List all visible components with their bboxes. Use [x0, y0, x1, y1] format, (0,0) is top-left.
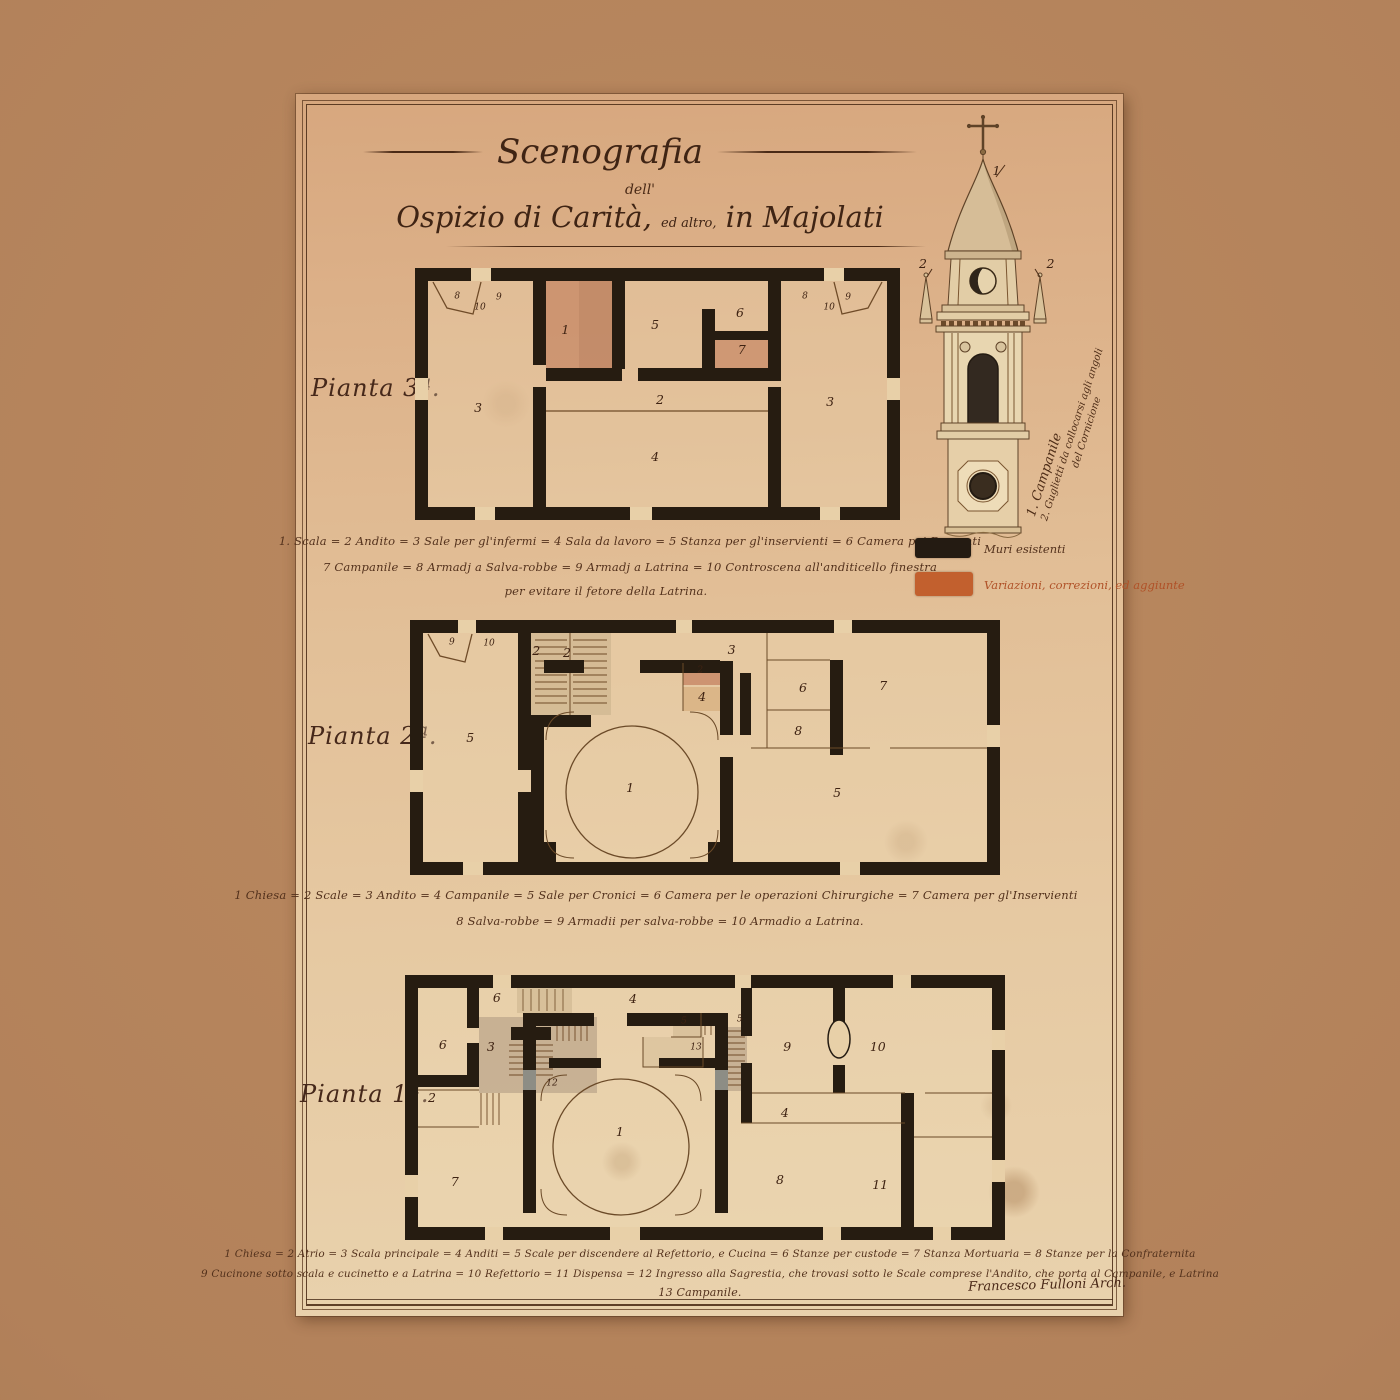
plan-2: 91052232416785 [410, 620, 1000, 875]
room-number: 2 [563, 647, 571, 660]
plan-1: 66345513122179104811 [405, 975, 1005, 1240]
room-number: 4 [698, 690, 706, 703]
room-number: 9 [496, 293, 502, 302]
room-number: 1 [561, 324, 569, 337]
plan-1-drawing [405, 975, 1005, 1240]
title-line2: Ospizio di Carità, ed altro, in Majolati [330, 200, 950, 234]
plan-3-caption-line3: per evitare il fetore della Latrina. [505, 584, 708, 598]
room-number: 4 [629, 993, 637, 1006]
room-number: 9 [783, 1041, 791, 1054]
room-number: 9 [845, 293, 851, 302]
title-sub: dell' [330, 182, 950, 198]
room-number: 3 [487, 1041, 495, 1054]
room-number: 9 [449, 638, 455, 647]
title-line2-c: in Majolati [726, 200, 884, 234]
room-number: 8 [802, 292, 808, 301]
room-number: 4 [781, 1107, 789, 1120]
room-number: 2 [697, 667, 703, 676]
room-number: 6 [736, 307, 744, 320]
campanile-drawing [908, 109, 1058, 539]
plan-3-caption-line1: 1. Scala = 2 Andito = 3 Sale per gl'infe… [279, 534, 981, 548]
room-number: 8 [454, 292, 460, 301]
room-number: 1 [616, 1126, 624, 1139]
plan-2-drawing [410, 620, 1000, 875]
title-underline-flourish [446, 246, 926, 247]
plan-1-caption-line3: 13 Campanile. [658, 1286, 741, 1299]
room-number: 2 [656, 394, 664, 407]
legend-label-changes: Variazioni, correzioni, ed aggiunte [984, 578, 1185, 592]
room-number: 8 [794, 725, 802, 738]
flourish-line-left [363, 151, 483, 153]
room-number: 8 [776, 1174, 784, 1187]
room-number: 12 [546, 1079, 557, 1088]
photo-background: { "title": { "main": "Scenografia", "sub… [0, 0, 1400, 1400]
legend-swatch-changes [915, 572, 973, 596]
plan-3-caption-line2: 7 Campanile = 8 Armadj a Salva-robbe = 9… [323, 560, 937, 574]
room-number: 3 [728, 644, 736, 657]
room-number: 7 [738, 344, 746, 357]
room-number: 10 [823, 304, 834, 313]
room-number: 5 [651, 319, 659, 332]
room-number: 3 [474, 402, 482, 415]
drawing-sheet: Scenografia dell' Ospizio di Carità, ed … [296, 94, 1123, 1316]
legend-swatch-existing-walls [915, 538, 971, 558]
room-number: 2 [532, 645, 540, 658]
room-number: 1 [993, 165, 1001, 178]
room-number: 10 [870, 1041, 886, 1054]
title-main: Scenografia [330, 132, 950, 172]
room-number: 5 [681, 1017, 687, 1026]
room-number: 2 [428, 1092, 436, 1105]
campanile-elevation: 122 [908, 109, 1058, 539]
room-number: 2 [1047, 258, 1055, 271]
room-number: 3 [826, 396, 834, 409]
plan-2-caption-line1: 1 Chiesa = 2 Scale = 3 Andito = 4 Campan… [234, 888, 1077, 902]
room-number: 6 [493, 992, 501, 1005]
room-number: 5 [833, 787, 841, 800]
room-number: 7 [879, 680, 887, 693]
plan-3: 8109315672438109 [415, 268, 900, 520]
room-number: 10 [483, 639, 494, 648]
room-number: 6 [799, 682, 807, 695]
room-number: 1 [626, 782, 634, 795]
room-number: 13 [690, 1043, 701, 1052]
room-number: 11 [872, 1179, 888, 1192]
room-number: 7 [451, 1175, 459, 1188]
room-number: 4 [651, 451, 659, 464]
title-main-text: Scenografia [497, 132, 703, 172]
room-number: 2 [919, 258, 927, 271]
room-number: 6 [439, 1039, 447, 1052]
plan-2-caption-line2: 8 Salva-robbe = 9 Armadii per salva-robb… [456, 914, 864, 928]
plan-1-caption-line1: 1 Chiesa = 2 Atrio = 3 Scala principale … [224, 1248, 1195, 1260]
legend-label-existing-walls: Muri esistenti [984, 542, 1065, 556]
sheet-frame-bottom-band [306, 1299, 1113, 1300]
room-number: 5 [737, 1016, 743, 1025]
title-line2-b: ed altro, [661, 216, 716, 231]
room-number: 5 [466, 732, 474, 745]
flourish-line-right [717, 151, 917, 153]
room-number: 10 [474, 304, 485, 313]
title-line2-a: Ospizio di Carità, [396, 200, 652, 234]
